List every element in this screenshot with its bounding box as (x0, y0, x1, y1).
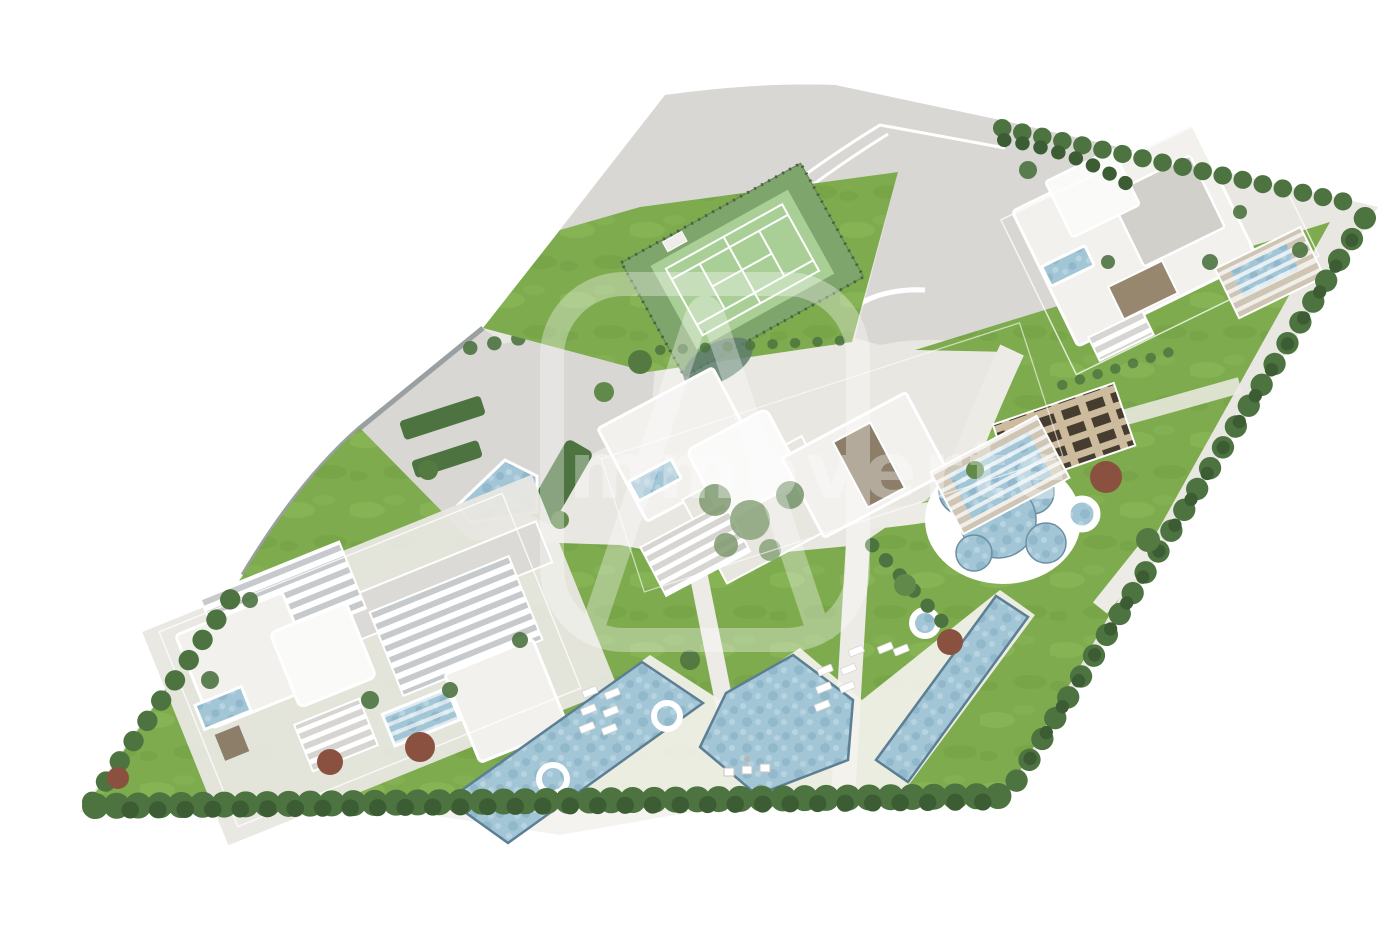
spa-pool-3 (912, 610, 938, 636)
site-plan-render: immoverte (0, 0, 1400, 933)
red-tree-4 (317, 749, 343, 775)
site-plan-svg: immoverte (0, 0, 1400, 933)
watermark-text: immoverte (535, 427, 1073, 517)
red-tree-5 (107, 767, 129, 789)
spa-pool-1 (654, 703, 680, 729)
red-tree-2 (937, 629, 963, 655)
red-tree-3 (405, 732, 435, 762)
red-tree-1 (1090, 461, 1122, 493)
